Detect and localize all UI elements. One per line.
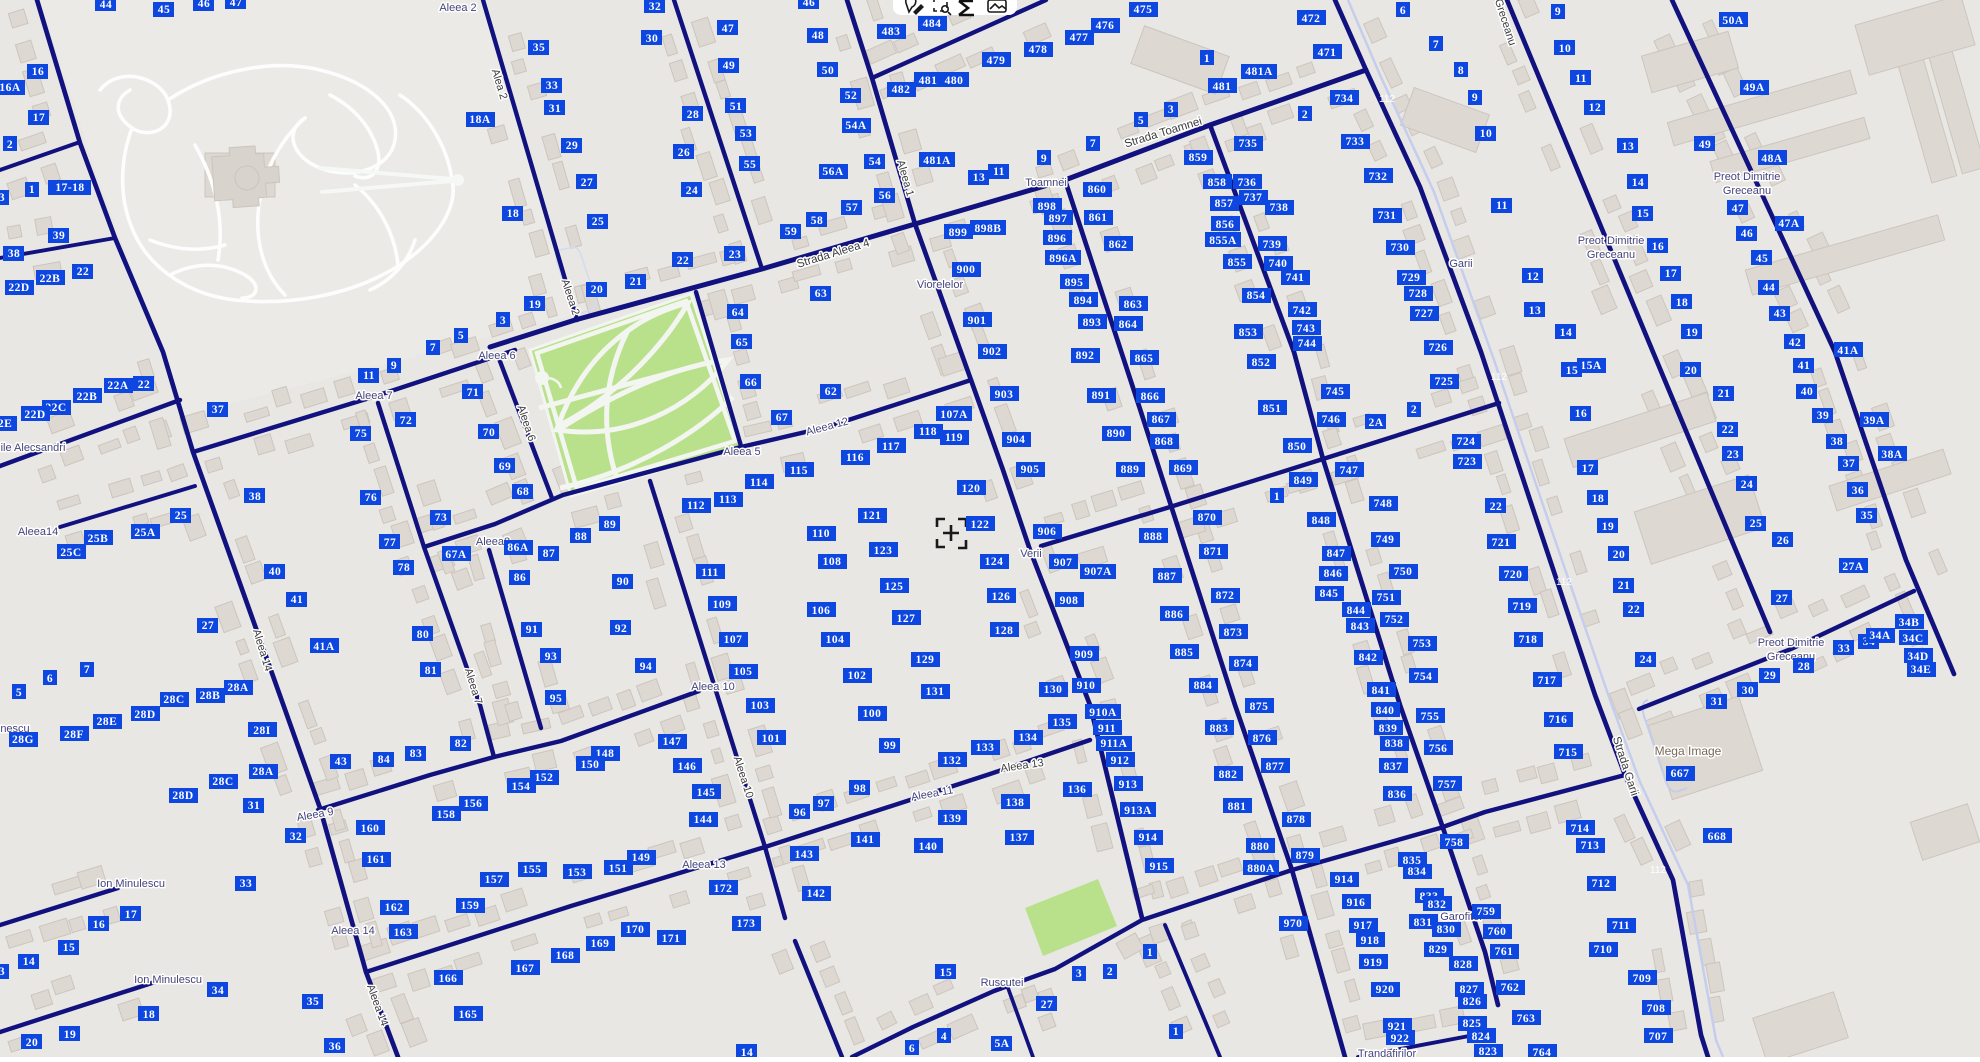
svg-text:886: 886 bbox=[1165, 609, 1184, 621]
svg-text:42: 42 bbox=[1789, 337, 1802, 349]
svg-text:828: 828 bbox=[1454, 959, 1473, 971]
svg-text:19: 19 bbox=[529, 299, 542, 311]
svg-text:708: 708 bbox=[1647, 1003, 1666, 1015]
svg-text:5A: 5A bbox=[994, 1038, 1009, 1050]
svg-text:22: 22 bbox=[138, 379, 151, 391]
svg-text:111: 111 bbox=[701, 567, 718, 579]
svg-text:732: 732 bbox=[1369, 171, 1388, 183]
svg-text:880A: 880A bbox=[1247, 863, 1275, 875]
svg-text:911A: 911A bbox=[1101, 738, 1128, 750]
svg-text:20: 20 bbox=[26, 1037, 39, 1049]
svg-text:41A: 41A bbox=[1837, 345, 1859, 357]
svg-text:906: 906 bbox=[1038, 526, 1057, 538]
svg-text:867: 867 bbox=[1152, 414, 1171, 426]
svg-text:26: 26 bbox=[1777, 535, 1790, 547]
svg-text:44: 44 bbox=[1763, 282, 1776, 294]
svg-text:48: 48 bbox=[812, 30, 825, 42]
svg-text:22E: 22E bbox=[0, 418, 12, 430]
svg-text:912: 912 bbox=[1111, 755, 1130, 767]
svg-text:847: 847 bbox=[1327, 548, 1346, 560]
svg-text:81: 81 bbox=[425, 665, 438, 677]
svg-text:75: 75 bbox=[355, 428, 368, 440]
svg-text:3: 3 bbox=[500, 315, 506, 327]
svg-text:717: 717 bbox=[1538, 675, 1557, 687]
svg-text:150: 150 bbox=[581, 759, 600, 771]
svg-text:888: 888 bbox=[1144, 531, 1163, 543]
svg-text:112: 112 bbox=[1650, 865, 1666, 876]
svg-text:29: 29 bbox=[566, 140, 579, 152]
svg-text:25B: 25B bbox=[88, 533, 109, 545]
svg-text:157: 157 bbox=[485, 874, 504, 886]
svg-text:738: 738 bbox=[1270, 202, 1289, 214]
svg-text:829: 829 bbox=[1429, 944, 1448, 956]
svg-text:9: 9 bbox=[1472, 92, 1478, 104]
svg-text:28: 28 bbox=[1798, 661, 1811, 673]
svg-text:22D: 22D bbox=[8, 282, 29, 294]
svg-text:719: 719 bbox=[1513, 601, 1532, 613]
svg-text:5: 5 bbox=[458, 330, 464, 342]
svg-text:22: 22 bbox=[1722, 424, 1735, 436]
svg-text:22A: 22A bbox=[107, 380, 129, 392]
svg-text:43: 43 bbox=[335, 756, 348, 768]
svg-text:858: 858 bbox=[1208, 177, 1227, 189]
svg-text:44: 44 bbox=[100, 0, 113, 11]
svg-text:36: 36 bbox=[329, 1041, 342, 1053]
svg-text:896: 896 bbox=[1048, 233, 1067, 245]
svg-text:904: 904 bbox=[1007, 434, 1026, 446]
svg-text:727: 727 bbox=[1415, 308, 1434, 320]
svg-text:834: 834 bbox=[1408, 866, 1427, 878]
svg-text:47: 47 bbox=[230, 0, 243, 9]
svg-text:49: 49 bbox=[723, 60, 736, 72]
svg-text:89: 89 bbox=[604, 519, 617, 531]
svg-text:38A: 38A bbox=[1881, 449, 1903, 461]
svg-text:22B: 22B bbox=[40, 273, 61, 285]
svg-text:709: 709 bbox=[1633, 973, 1652, 985]
svg-text:140: 140 bbox=[919, 841, 938, 853]
svg-text:58: 58 bbox=[811, 215, 824, 227]
svg-text:6: 6 bbox=[1400, 5, 1406, 17]
svg-text:Preot Dimitrie: Preot Dimitrie bbox=[1714, 171, 1781, 183]
svg-text:716: 716 bbox=[1549, 714, 1568, 726]
svg-text:22: 22 bbox=[1490, 501, 1503, 513]
svg-text:76: 76 bbox=[365, 492, 378, 504]
svg-text:757: 757 bbox=[1438, 779, 1457, 791]
svg-text:27: 27 bbox=[202, 620, 215, 632]
svg-text:25C: 25C bbox=[60, 547, 81, 559]
svg-text:65: 65 bbox=[736, 337, 749, 349]
svg-text:108: 108 bbox=[823, 556, 842, 568]
svg-text:115: 115 bbox=[790, 465, 808, 477]
svg-text:878: 878 bbox=[1287, 814, 1306, 826]
svg-text:147: 147 bbox=[663, 736, 682, 748]
svg-text:167: 167 bbox=[516, 963, 535, 975]
svg-text:861: 861 bbox=[1089, 212, 1108, 224]
svg-text:855A: 855A bbox=[1209, 235, 1237, 247]
svg-text:848: 848 bbox=[1312, 515, 1331, 527]
svg-text:98: 98 bbox=[854, 783, 867, 795]
svg-text:853: 853 bbox=[1239, 327, 1258, 339]
svg-text:741: 741 bbox=[1286, 272, 1305, 284]
svg-text:28D: 28D bbox=[172, 790, 193, 802]
svg-text:41: 41 bbox=[1798, 360, 1811, 372]
svg-text:472: 472 bbox=[1302, 13, 1321, 25]
svg-text:132: 132 bbox=[943, 755, 962, 767]
svg-text:149: 149 bbox=[632, 852, 651, 864]
svg-text:730: 730 bbox=[1391, 242, 1410, 254]
svg-text:753: 753 bbox=[1413, 638, 1432, 650]
svg-text:162: 162 bbox=[385, 902, 404, 914]
svg-text:731: 731 bbox=[1378, 210, 1397, 222]
svg-text:910: 910 bbox=[1077, 680, 1096, 692]
svg-text:170: 170 bbox=[626, 924, 645, 936]
svg-text:3: 3 bbox=[1168, 104, 1174, 116]
svg-text:28A: 28A bbox=[227, 682, 249, 694]
svg-text:17: 17 bbox=[1665, 268, 1678, 280]
svg-text:893: 893 bbox=[1083, 317, 1102, 329]
svg-text:7: 7 bbox=[430, 342, 436, 354]
svg-text:742: 742 bbox=[1293, 305, 1312, 317]
svg-text:45: 45 bbox=[158, 4, 171, 16]
svg-text:107: 107 bbox=[724, 634, 743, 646]
svg-text:846: 846 bbox=[1324, 568, 1343, 580]
svg-text:22B: 22B bbox=[77, 391, 98, 403]
svg-text:107A: 107A bbox=[940, 409, 968, 421]
svg-text:38: 38 bbox=[1831, 436, 1844, 448]
svg-text:13: 13 bbox=[973, 172, 986, 184]
svg-text:900: 900 bbox=[957, 264, 976, 276]
svg-text:970: 970 bbox=[1284, 918, 1303, 930]
svg-text:117: 117 bbox=[882, 441, 900, 453]
svg-text:49A: 49A bbox=[1743, 82, 1765, 94]
svg-text:895: 895 bbox=[1065, 277, 1084, 289]
svg-text:916: 916 bbox=[1347, 897, 1366, 909]
svg-text:860: 860 bbox=[1088, 184, 1107, 196]
svg-text:2: 2 bbox=[1411, 404, 1417, 416]
svg-text:21: 21 bbox=[1718, 388, 1731, 400]
svg-text:22: 22 bbox=[677, 255, 690, 267]
svg-text:915: 915 bbox=[1150, 861, 1169, 873]
svg-text:Aleea14: Aleea14 bbox=[18, 526, 58, 538]
svg-text:898B: 898B bbox=[975, 223, 1002, 235]
svg-text:902: 902 bbox=[983, 346, 1002, 358]
svg-text:894: 894 bbox=[1074, 295, 1093, 307]
svg-text:88: 88 bbox=[575, 531, 588, 543]
svg-text:712: 712 bbox=[1592, 878, 1611, 890]
svg-text:7: 7 bbox=[1090, 138, 1096, 150]
svg-text:86A: 86A bbox=[507, 542, 529, 554]
svg-text:859: 859 bbox=[1189, 152, 1208, 164]
svg-text:173: 173 bbox=[737, 918, 756, 930]
svg-text:28A: 28A bbox=[252, 766, 274, 778]
svg-text:67: 67 bbox=[776, 412, 789, 424]
svg-text:125: 125 bbox=[885, 581, 904, 593]
svg-text:9: 9 bbox=[391, 360, 397, 372]
svg-text:Greceanu: Greceanu bbox=[1587, 249, 1635, 261]
svg-text:55: 55 bbox=[744, 159, 757, 171]
svg-text:154: 154 bbox=[512, 781, 531, 793]
svg-text:754: 754 bbox=[1414, 671, 1433, 683]
svg-text:720: 720 bbox=[1504, 569, 1523, 581]
svg-text:102: 102 bbox=[848, 670, 867, 682]
svg-text:19: 19 bbox=[64, 1029, 77, 1041]
svg-text:Toamnei: Toamnei bbox=[1025, 177, 1067, 189]
svg-text:16: 16 bbox=[93, 919, 106, 931]
svg-text:863: 863 bbox=[1124, 299, 1143, 311]
svg-text:481A: 481A bbox=[923, 155, 951, 167]
svg-text:872: 872 bbox=[1216, 590, 1235, 602]
svg-text:96: 96 bbox=[794, 807, 807, 819]
svg-text:729: 729 bbox=[1402, 272, 1421, 284]
svg-text:34D: 34D bbox=[1907, 651, 1928, 663]
svg-text:106: 106 bbox=[812, 605, 831, 617]
svg-text:145: 145 bbox=[697, 787, 716, 799]
svg-text:837: 837 bbox=[1384, 761, 1403, 773]
svg-text:153: 153 bbox=[568, 867, 587, 879]
svg-text:12: 12 bbox=[1527, 271, 1540, 283]
svg-text:15: 15 bbox=[63, 942, 76, 954]
svg-text:746: 746 bbox=[1322, 414, 1341, 426]
svg-text:909: 909 bbox=[1075, 649, 1094, 661]
svg-text:30: 30 bbox=[1742, 685, 1755, 697]
svg-text:28D: 28D bbox=[134, 709, 155, 721]
svg-text:47: 47 bbox=[1732, 203, 1745, 215]
svg-text:864: 864 bbox=[1119, 319, 1138, 331]
svg-text:27: 27 bbox=[581, 177, 594, 189]
svg-text:18A: 18A bbox=[469, 114, 491, 126]
svg-text:66: 66 bbox=[745, 377, 758, 389]
svg-text:15: 15 bbox=[1566, 365, 1579, 377]
svg-text:82: 82 bbox=[455, 738, 468, 750]
svg-text:851: 851 bbox=[1263, 403, 1282, 415]
svg-text:3: 3 bbox=[1076, 968, 1082, 980]
svg-text:43: 43 bbox=[1774, 308, 1787, 320]
svg-text:897: 897 bbox=[1049, 213, 1068, 225]
svg-text:5: 5 bbox=[1138, 115, 1144, 127]
svg-text:843: 843 bbox=[1351, 621, 1370, 633]
svg-text:479: 479 bbox=[987, 55, 1006, 67]
svg-text:24: 24 bbox=[1640, 654, 1653, 666]
svg-text:Garii: Garii bbox=[1449, 258, 1472, 270]
svg-text:869: 869 bbox=[1174, 463, 1193, 475]
svg-text:707: 707 bbox=[1649, 1031, 1668, 1043]
svg-text:840: 840 bbox=[1376, 705, 1395, 717]
svg-text:32: 32 bbox=[290, 831, 303, 843]
svg-text:92: 92 bbox=[615, 623, 628, 635]
svg-text:134: 134 bbox=[1019, 732, 1038, 744]
svg-text:824: 824 bbox=[1472, 1031, 1491, 1043]
svg-text:484: 484 bbox=[923, 18, 942, 30]
svg-text:120: 120 bbox=[962, 483, 981, 495]
svg-text:758: 758 bbox=[1445, 837, 1464, 849]
svg-text:752: 752 bbox=[1385, 614, 1404, 626]
svg-text:476: 476 bbox=[1096, 20, 1115, 32]
svg-text:868: 868 bbox=[1155, 436, 1174, 448]
svg-text:127: 127 bbox=[897, 613, 916, 625]
svg-text:99: 99 bbox=[884, 740, 897, 752]
svg-text:112: 112 bbox=[1379, 94, 1395, 105]
svg-text:481: 481 bbox=[1213, 81, 1232, 93]
svg-text:Verii: Verii bbox=[1020, 548, 1041, 560]
svg-text:11: 11 bbox=[363, 370, 375, 382]
svg-text:27A: 27A bbox=[1842, 561, 1864, 573]
svg-text:22: 22 bbox=[77, 266, 90, 278]
svg-text:841: 841 bbox=[1372, 685, 1391, 697]
svg-text:112: 112 bbox=[1491, 372, 1507, 383]
svg-text:856: 856 bbox=[1216, 219, 1235, 231]
svg-text:130: 130 bbox=[1044, 684, 1063, 696]
svg-text:907A: 907A bbox=[1084, 566, 1112, 578]
svg-text:711: 711 bbox=[1612, 920, 1630, 932]
svg-text:11: 11 bbox=[1575, 73, 1587, 85]
svg-text:40: 40 bbox=[269, 566, 282, 578]
svg-text:718: 718 bbox=[1519, 634, 1538, 646]
svg-text:34: 34 bbox=[212, 985, 225, 997]
svg-text:15: 15 bbox=[940, 967, 953, 979]
svg-text:41: 41 bbox=[291, 594, 304, 606]
svg-text:91: 91 bbox=[526, 624, 539, 636]
svg-text:94: 94 bbox=[640, 661, 653, 673]
svg-text:28C: 28C bbox=[163, 694, 184, 706]
svg-text:Aleea 13: Aleea 13 bbox=[682, 859, 725, 871]
svg-text:35: 35 bbox=[1861, 510, 1874, 522]
svg-text:112: 112 bbox=[1556, 577, 1572, 588]
svg-text:26: 26 bbox=[678, 147, 691, 159]
svg-text:756: 756 bbox=[1429, 743, 1448, 755]
svg-text:883: 883 bbox=[1210, 723, 1229, 735]
svg-text:144: 144 bbox=[694, 814, 713, 826]
svg-text:914: 914 bbox=[1139, 832, 1158, 844]
svg-text:163: 163 bbox=[394, 927, 413, 939]
svg-text:910A: 910A bbox=[1089, 707, 1117, 719]
svg-text:53: 53 bbox=[740, 128, 753, 140]
svg-text:128: 128 bbox=[995, 625, 1014, 637]
svg-text:86: 86 bbox=[514, 572, 527, 584]
svg-text:103: 103 bbox=[751, 700, 770, 712]
svg-text:891: 891 bbox=[1092, 390, 1111, 402]
svg-text:101: 101 bbox=[762, 733, 781, 745]
svg-text:2A: 2A bbox=[1368, 417, 1383, 429]
svg-text:27: 27 bbox=[1776, 593, 1789, 605]
svg-text:764: 764 bbox=[1533, 1047, 1552, 1057]
svg-text:854: 854 bbox=[1247, 290, 1266, 302]
svg-text:23: 23 bbox=[1727, 449, 1740, 461]
svg-text:733: 733 bbox=[1346, 136, 1365, 148]
svg-text:114: 114 bbox=[750, 477, 768, 489]
svg-text:70: 70 bbox=[483, 427, 496, 439]
svg-text:739: 739 bbox=[1263, 239, 1282, 251]
svg-text:7: 7 bbox=[84, 664, 90, 676]
svg-text:844: 844 bbox=[1347, 605, 1366, 617]
svg-text:866: 866 bbox=[1141, 391, 1160, 403]
svg-text:842: 842 bbox=[1359, 652, 1378, 664]
svg-text:478: 478 bbox=[1029, 44, 1048, 56]
svg-text:41A: 41A bbox=[313, 641, 335, 653]
svg-text:8: 8 bbox=[1458, 65, 1464, 77]
svg-text:836: 836 bbox=[1388, 789, 1407, 801]
svg-text:18: 18 bbox=[1676, 297, 1689, 309]
svg-text:30: 30 bbox=[646, 33, 659, 45]
svg-text:14: 14 bbox=[23, 956, 36, 968]
svg-text:Ion Minulescu: Ion Minulescu bbox=[97, 878, 165, 890]
svg-text:9: 9 bbox=[1555, 6, 1561, 18]
svg-text:14: 14 bbox=[741, 1047, 754, 1057]
svg-text:28B: 28B bbox=[200, 690, 221, 702]
svg-text:9: 9 bbox=[1041, 153, 1047, 165]
svg-text:483: 483 bbox=[882, 26, 901, 38]
svg-text:Ruscutei: Ruscutei bbox=[981, 977, 1024, 989]
svg-text:16: 16 bbox=[1575, 408, 1588, 420]
svg-text:830: 830 bbox=[1437, 924, 1456, 936]
svg-text:34C: 34C bbox=[1902, 633, 1923, 645]
svg-text:713: 713 bbox=[1581, 840, 1600, 852]
svg-text:2: 2 bbox=[1107, 966, 1113, 978]
svg-text:482: 482 bbox=[892, 84, 911, 96]
svg-text:920: 920 bbox=[1376, 984, 1395, 996]
svg-text:34B: 34B bbox=[1899, 617, 1920, 629]
svg-text:917: 917 bbox=[1354, 920, 1373, 932]
svg-text:735: 735 bbox=[1239, 138, 1258, 150]
svg-text:475: 475 bbox=[1134, 4, 1153, 16]
svg-text:1: 1 bbox=[1147, 947, 1153, 959]
svg-text:Preot Dimitrie: Preot Dimitrie bbox=[1578, 235, 1645, 247]
svg-text:668: 668 bbox=[1708, 831, 1727, 843]
svg-text:852: 852 bbox=[1252, 357, 1271, 369]
svg-text:166: 166 bbox=[439, 973, 458, 985]
svg-text:109: 109 bbox=[713, 599, 732, 611]
svg-text:131: 131 bbox=[926, 686, 945, 698]
svg-text:870: 870 bbox=[1198, 512, 1217, 524]
svg-text:763: 763 bbox=[1517, 1013, 1536, 1025]
svg-text:138: 138 bbox=[1006, 797, 1025, 809]
svg-text:16A: 16A bbox=[0, 82, 21, 94]
svg-text:823: 823 bbox=[1479, 1046, 1498, 1057]
svg-text:725: 725 bbox=[1435, 376, 1454, 388]
svg-text:849: 849 bbox=[1294, 475, 1313, 487]
svg-text:21: 21 bbox=[1618, 580, 1631, 592]
svg-text:1: 1 bbox=[29, 184, 35, 196]
svg-text:56: 56 bbox=[879, 190, 892, 202]
svg-text:21: 21 bbox=[630, 276, 643, 288]
svg-text:6: 6 bbox=[47, 673, 53, 685]
svg-text:759: 759 bbox=[1477, 906, 1496, 918]
svg-text:24: 24 bbox=[1741, 479, 1754, 491]
svg-text:35: 35 bbox=[307, 996, 320, 1008]
svg-text:918: 918 bbox=[1361, 935, 1380, 947]
svg-text:161: 161 bbox=[367, 854, 386, 866]
svg-text:471: 471 bbox=[1318, 47, 1337, 59]
svg-text:119: 119 bbox=[945, 432, 963, 444]
svg-text:25: 25 bbox=[592, 216, 605, 228]
svg-text:913: 913 bbox=[1119, 779, 1138, 791]
svg-text:168: 168 bbox=[556, 950, 575, 962]
svg-text:12: 12 bbox=[1589, 102, 1602, 114]
svg-text:2: 2 bbox=[1302, 109, 1308, 121]
svg-text:32: 32 bbox=[649, 1, 662, 13]
svg-text:28E: 28E bbox=[97, 716, 118, 728]
svg-text:50: 50 bbox=[822, 65, 835, 77]
svg-text:761: 761 bbox=[1495, 946, 1514, 958]
svg-text:726: 726 bbox=[1429, 342, 1448, 354]
svg-text:23: 23 bbox=[729, 249, 742, 261]
svg-text:67A: 67A bbox=[445, 549, 467, 561]
svg-text:39: 39 bbox=[53, 230, 66, 242]
svg-text:914: 914 bbox=[1335, 874, 1354, 886]
svg-text:20: 20 bbox=[1613, 549, 1626, 561]
svg-text:87: 87 bbox=[543, 548, 556, 560]
svg-text:839: 839 bbox=[1379, 723, 1398, 735]
svg-text:28G: 28G bbox=[12, 734, 34, 746]
